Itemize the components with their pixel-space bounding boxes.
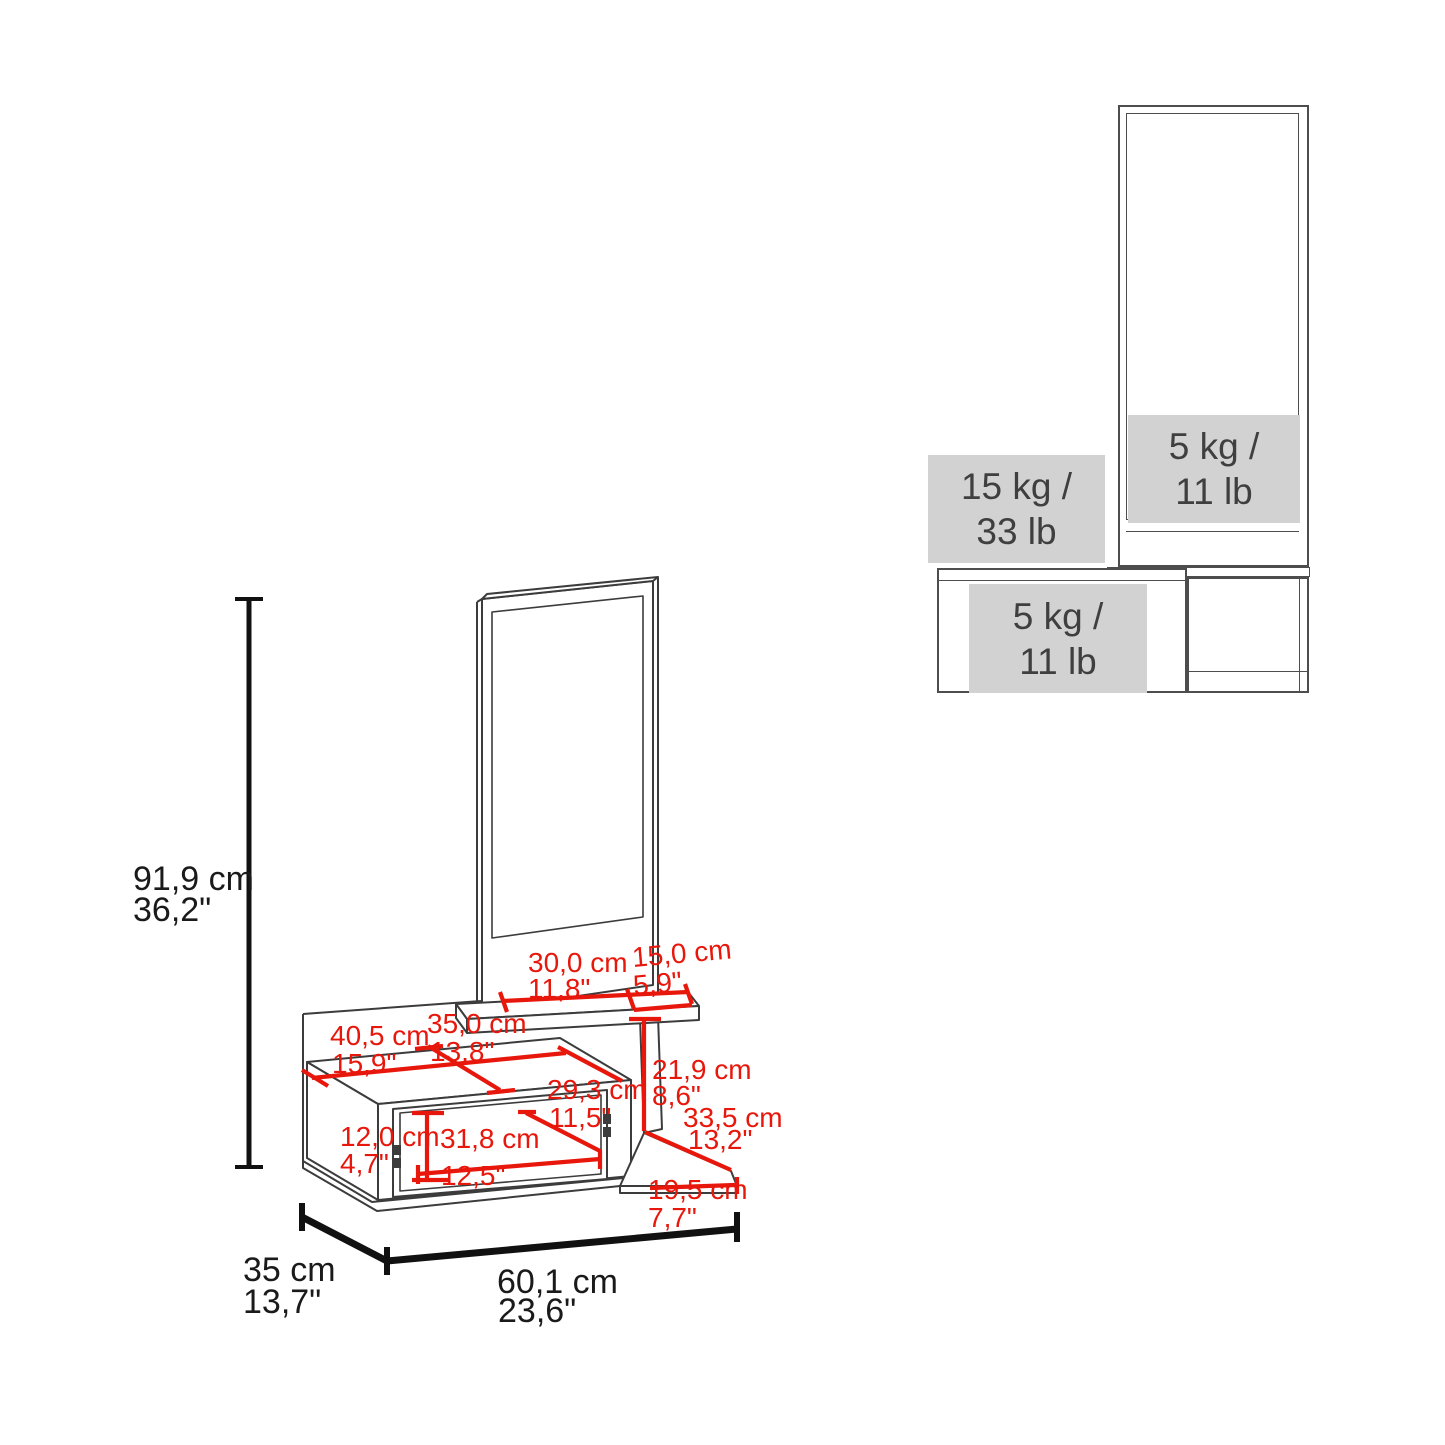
dim-inner-cm: 29,3 cm — [547, 1074, 647, 1105]
mirror-front-view: 5 kg / 11 lb — [1118, 105, 1309, 567]
dim-top-depth-cm: 35,0 cm — [427, 1008, 527, 1039]
capacity-line: 11 lb — [1175, 469, 1253, 514]
dim-top-width-in: 15,9" — [332, 1048, 396, 1079]
dim-lower-depth-in: 13,2" — [688, 1124, 752, 1155]
capacity-badge-mirror-shelf: 5 kg / 11 lb — [1128, 415, 1300, 523]
capacity-line: 11 lb — [1019, 639, 1097, 684]
overall-width-in: 23,6" — [498, 1292, 576, 1330]
dim-shelf-left-in: 11,8" — [528, 973, 590, 1004]
dim-lower-width-cm: 19,5 cm — [648, 1174, 748, 1205]
dim-door-height-in: 4,7" — [340, 1148, 389, 1179]
capacity-badge-top-shelf: 15 kg / 33 lb — [928, 455, 1105, 563]
mirror-frame-line — [1126, 531, 1299, 532]
hinge-left-icon — [393, 1158, 401, 1168]
dim-door-width-cm: 31,8 cm — [440, 1123, 540, 1154]
capacity-line: 33 lb — [976, 509, 1056, 554]
dim-door-width-in: 12,5" — [441, 1160, 505, 1191]
side-panel-edge-line — [1299, 579, 1300, 691]
capacity-line: 5 kg / — [1169, 424, 1260, 469]
overall-height-in: 36,2" — [133, 891, 211, 929]
dim-lower-width-in: 7,7" — [648, 1202, 697, 1233]
dim-inner-in: 11,5" — [549, 1102, 611, 1133]
dim-top-width-cm: 40,5 cm — [330, 1020, 430, 1051]
cabinet-front-view: 5 kg / 11 lb — [937, 568, 1187, 693]
dim-top-depth-in: 13,8" — [430, 1036, 494, 1067]
lower-shelf-band — [1189, 671, 1307, 691]
side-panel-front-view — [1187, 577, 1309, 693]
capacity-line: 15 kg / — [961, 464, 1072, 509]
furniture-dimension-sheet: 91,9 cm 36,2" 35 cm 13,7" 60,1 cm 23,6" … — [0, 0, 1445, 1445]
capacity-line: 5 kg / — [1013, 594, 1104, 639]
overall-depth-in: 13,7" — [243, 1283, 321, 1321]
dim-shelf-right-in: 5,9" — [632, 966, 683, 1001]
capacity-badge-drawer: 5 kg / 11 lb — [969, 584, 1147, 693]
cabinet-top-band — [939, 570, 1185, 581]
